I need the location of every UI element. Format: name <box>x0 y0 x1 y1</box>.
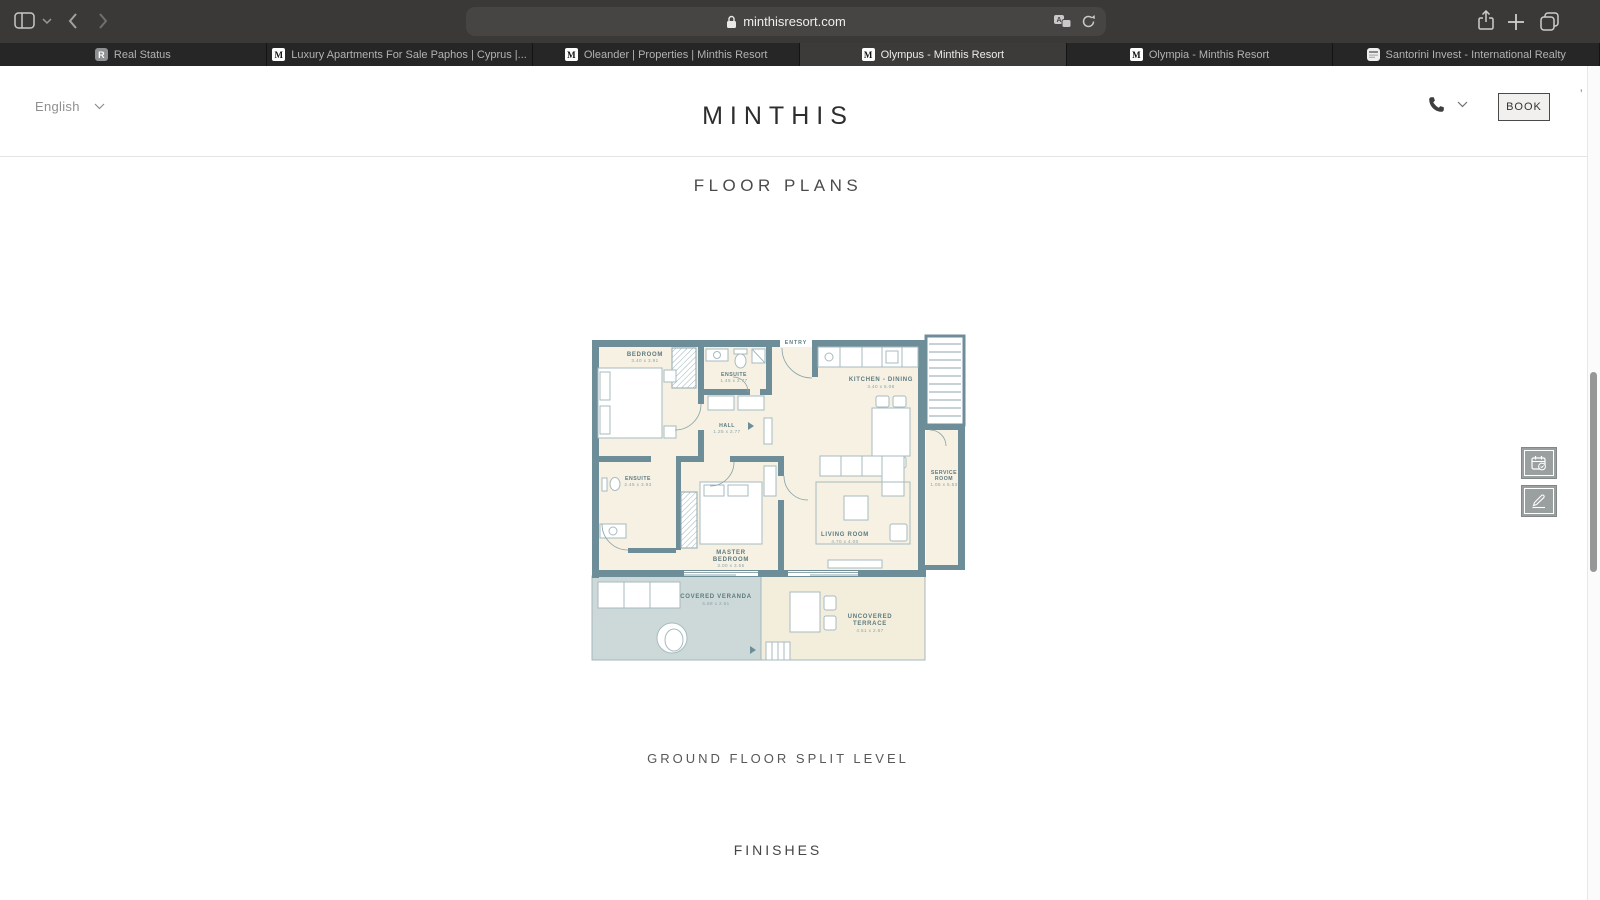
minthis-favicon: M <box>565 48 578 61</box>
service-dims: 1.05 x 5.53 <box>930 482 957 487</box>
tab-title: Olympus - Minthis Resort <box>881 49 1004 61</box>
tab-luxury-apartments[interactable]: M Luxury Apartments For Sale Paphos | Cy… <box>267 43 534 66</box>
terrace-label-2: TERRACE <box>853 621 887 627</box>
living-dims: 4.70 x 4.00 <box>831 539 858 544</box>
booking-calendar-button[interactable] <box>1521 447 1557 479</box>
reload-icon[interactable] <box>1081 14 1096 29</box>
tab-real-status[interactable]: R Real Status <box>0 43 267 66</box>
living-label: LIVING ROOM <box>821 532 869 538</box>
stray-glyph: ’ <box>1580 88 1582 100</box>
tab-olympia[interactable]: M Olympia - Minthis Resort <box>1067 43 1334 66</box>
ensuite1-dims: 1.45 x 2.77 <box>720 378 747 383</box>
kitchen-dims: 3.40 x 5.08 <box>867 384 894 389</box>
tab-oleander[interactable]: M Oleander | Properties | Minthis Resort <box>533 43 800 66</box>
hall-dims: 1.25 x 2.77 <box>713 429 740 434</box>
terrace-label-1: UNCOVERED <box>848 614 893 620</box>
svg-text:A: A <box>1056 17 1061 24</box>
sidebar-chevron-down-icon[interactable] <box>42 18 52 25</box>
tab-title: Olympia - Minthis Resort <box>1149 49 1269 61</box>
bedroom-dims: 3.40 x 3.91 <box>631 358 658 363</box>
minthis-favicon: M <box>862 48 875 61</box>
floor-plan-image: BEDROOM ENSUITE ENTRY KITCHEN - DINING H… <box>588 334 966 663</box>
phone-icon[interactable] <box>1428 96 1445 113</box>
tab-title: Luxury Apartments For Sale Paphos | Cypr… <box>291 49 527 61</box>
enquire-edit-button[interactable] <box>1521 485 1557 517</box>
scrollbar-track[interactable] <box>1587 66 1600 900</box>
translate-icon[interactable]: A <box>1054 15 1071 28</box>
floor-plan-svg: BEDROOM ENSUITE ENTRY KITCHEN - DINING H… <box>588 334 966 663</box>
tab-title: Real Status <box>114 49 171 61</box>
forward-icon[interactable] <box>98 12 108 30</box>
santorini-favicon <box>1367 48 1380 61</box>
lock-icon <box>726 15 737 29</box>
new-tab-icon[interactable] <box>1508 14 1524 30</box>
share-icon[interactable] <box>1477 10 1495 32</box>
finishes-title: FINISHES <box>0 842 1556 858</box>
service-floor <box>926 430 963 568</box>
sidebar-toggle-icon[interactable] <box>14 12 36 30</box>
url-text: minthisresort.com <box>743 14 846 29</box>
tabs-overview-icon[interactable] <box>1540 12 1559 31</box>
entry-label: ENTRY <box>785 340 807 346</box>
veranda-label: COVERED VERANDA <box>680 594 752 600</box>
tab-bar: R Real Status M Luxury Apartments For Sa… <box>0 43 1600 66</box>
site-header: English MINTHIS BOOK <box>0 66 1588 157</box>
pencil-icon <box>1524 488 1554 514</box>
stairs <box>926 336 964 425</box>
back-icon[interactable] <box>68 12 78 30</box>
plan-caption: GROUND FLOOR SPLIT LEVEL <box>0 751 1556 766</box>
phone-chevron-down-icon[interactable] <box>1457 101 1468 108</box>
minthis-logo[interactable]: MINTHIS <box>0 102 1556 131</box>
real-status-favicon: R <box>95 48 108 61</box>
ensuite2-dims: 2.45 x 3.93 <box>624 482 651 487</box>
browser-toolbar: minthisresort.com A <box>0 0 1600 43</box>
tab-title: Santorini Invest - International Realty <box>1386 49 1566 61</box>
address-bar[interactable]: minthisresort.com A <box>466 7 1106 36</box>
floor-plans-title: FLOOR PLANS <box>0 176 1556 196</box>
tab-title: Oleander | Properties | Minthis Resort <box>584 49 768 61</box>
tab-olympus-active[interactable]: M Olympus - Minthis Resort <box>800 43 1067 66</box>
master-label-1: MASTER <box>716 550 746 556</box>
book-button[interactable]: BOOK <box>1498 93 1550 121</box>
master-dims: 3.00 x 3.55 <box>717 563 744 568</box>
kitchen-label: KITCHEN - DINING <box>849 377 913 383</box>
minthis-favicon: M <box>1130 48 1143 61</box>
veranda-dims: 5.88 x 2.61 <box>702 601 729 606</box>
minthis-favicon: M <box>272 48 285 61</box>
scrollbar-thumb[interactable] <box>1590 372 1597 572</box>
tab-santorini-invest[interactable]: Santorini Invest - International Realty <box>1333 43 1600 66</box>
terrace-dims: 4.51 x 2.87 <box>856 628 883 633</box>
calendar-check-icon <box>1524 450 1554 476</box>
